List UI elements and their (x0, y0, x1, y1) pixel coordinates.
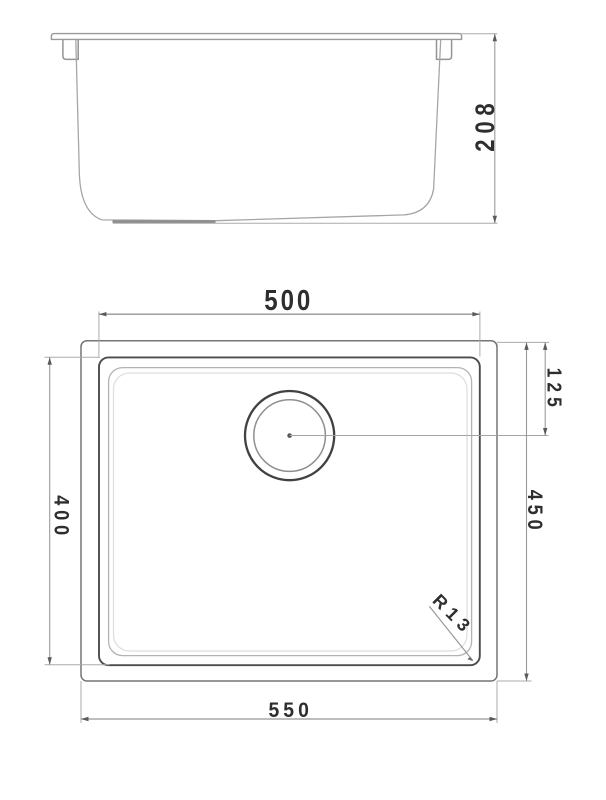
svg-text:500: 500 (264, 284, 313, 317)
svg-text:125: 125 (542, 368, 565, 412)
svg-text:550: 550 (268, 698, 312, 722)
svg-text:450: 450 (522, 490, 546, 534)
svg-text:208: 208 (471, 98, 501, 152)
svg-text:400: 400 (49, 495, 73, 539)
